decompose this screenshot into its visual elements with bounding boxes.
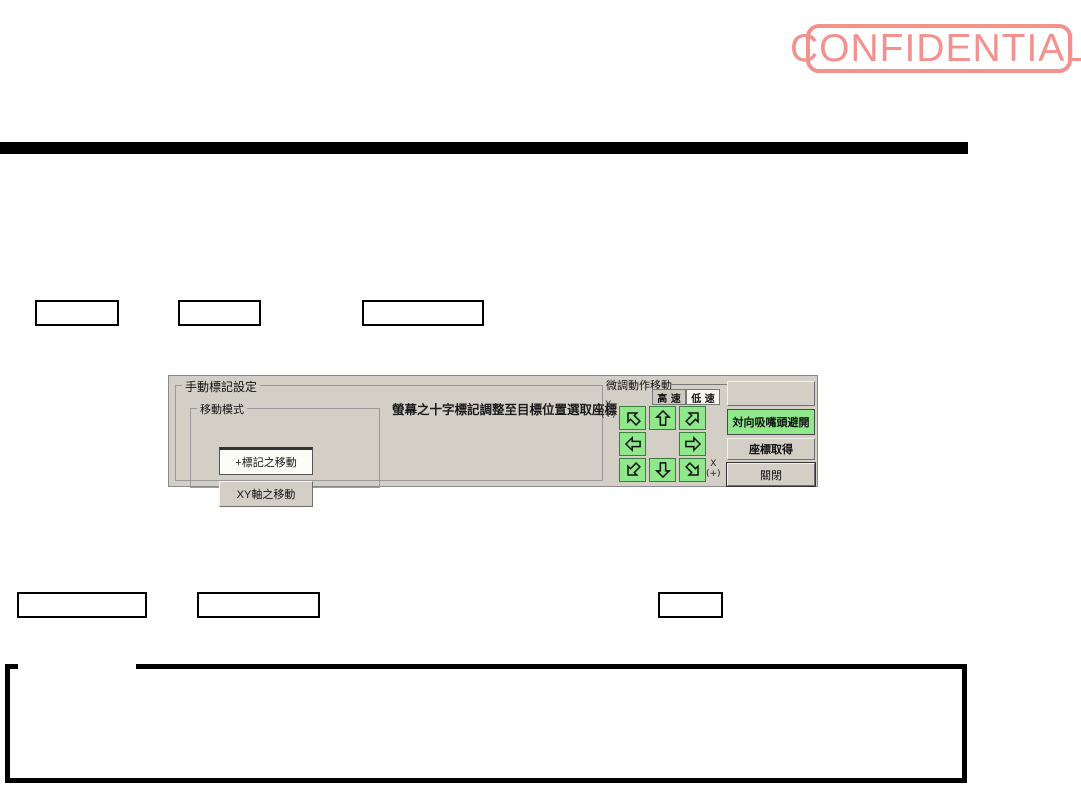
- tab-low-speed[interactable]: 低 速: [686, 389, 720, 405]
- blank-field-box-5: [197, 592, 320, 618]
- left-arrow-icon: [623, 434, 643, 454]
- right-arrow-icon: [683, 434, 703, 454]
- y-axis-plus-label: Y(+): [601, 400, 616, 420]
- jog-left-button[interactable]: [619, 432, 646, 456]
- jog-up-left-button[interactable]: [619, 406, 646, 430]
- blank-field-box-6: [658, 592, 723, 618]
- jog-right-button[interactable]: [679, 432, 706, 456]
- blank-field-box-3: [362, 300, 484, 326]
- redaction-bar: [0, 142, 968, 154]
- move-mode-group: 移動模式 +標記之移動 XY軸之移動: [190, 408, 380, 488]
- up-left-arrow-icon: [623, 408, 643, 428]
- mark-move-button[interactable]: +標記之移動: [219, 447, 313, 475]
- get-coordinates-button[interactable]: 座標取得: [727, 438, 815, 460]
- close-button[interactable]: 關閉: [727, 463, 815, 486]
- note-outline-box: [5, 664, 967, 783]
- blank-side-button[interactable]: [727, 381, 815, 406]
- manual-mark-setting-title: 手動標記設定: [182, 378, 260, 395]
- note-outline-box-title-gap: [18, 664, 136, 669]
- up-arrow-icon: [653, 408, 673, 428]
- jog-title-underline: [670, 384, 728, 385]
- document-page: CONFIDENTIAL 手動標記設定 移動模式 +標記之移動 XY軸之移動 螢…: [0, 0, 1081, 787]
- x-axis-plus-label: X(+): [706, 459, 721, 479]
- down-right-arrow-icon: [683, 460, 703, 480]
- blank-field-box-1: [35, 300, 119, 326]
- blank-field-box-4: [17, 592, 147, 618]
- jog-down-button[interactable]: [649, 458, 676, 482]
- jog-up-button[interactable]: [649, 406, 676, 430]
- jog-down-right-button[interactable]: [679, 458, 706, 482]
- down-arrow-icon: [653, 460, 673, 480]
- nozzle-avoid-button[interactable]: 対向吸嘴頭避開: [727, 409, 815, 435]
- manual-mark-panel-screenshot: 手動標記設定 移動模式 +標記之移動 XY軸之移動 螢幕之十字標記調整至目標位置…: [168, 375, 818, 487]
- jog-down-left-button[interactable]: [619, 458, 646, 482]
- xy-axis-move-button[interactable]: XY軸之移動: [219, 481, 313, 507]
- blank-field-box-2: [178, 300, 261, 326]
- down-left-arrow-icon: [623, 460, 643, 480]
- jog-up-right-button[interactable]: [679, 406, 706, 430]
- move-mode-title: 移動模式: [197, 401, 247, 417]
- manual-mark-setting-group: 手動標記設定 移動模式 +標記之移動 XY軸之移動 螢幕之十字標記調整至目標位置…: [175, 385, 603, 481]
- crosshair-instruction-text: 螢幕之十字標記調整至目標位置選取座標: [392, 399, 610, 418]
- up-right-arrow-icon: [683, 408, 703, 428]
- confidential-stamp: CONFIDENTIAL: [806, 24, 1072, 73]
- tab-high-speed[interactable]: 高 速: [652, 389, 686, 405]
